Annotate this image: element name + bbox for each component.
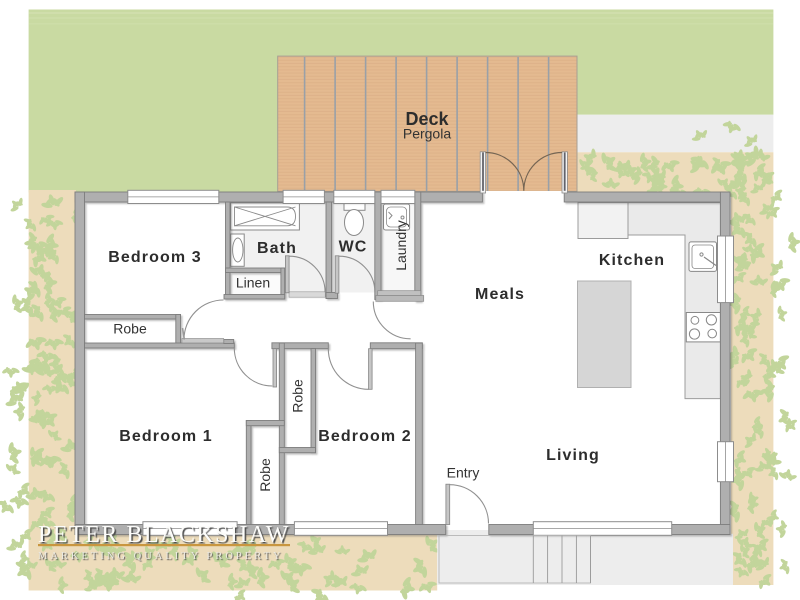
svg-text:Bedroom 2: Bedroom 2: [318, 428, 411, 445]
svg-text:MARKETING QUALITY PROPERTY: MARKETING QUALITY PROPERTY: [38, 551, 284, 562]
svg-text:Robe: Robe: [257, 458, 273, 492]
svg-text:WC: WC: [339, 239, 368, 256]
svg-text:Linen: Linen: [236, 275, 270, 291]
svg-text:Living: Living: [546, 447, 600, 464]
svg-text:Bedroom 1: Bedroom 1: [119, 428, 212, 445]
svg-text:Bath: Bath: [257, 240, 297, 257]
svg-text:Laundry: Laundry: [393, 220, 409, 271]
svg-text:Kitchen: Kitchen: [599, 252, 665, 269]
svg-text:Bedroom 3: Bedroom 3: [108, 249, 201, 266]
svg-text:Entry: Entry: [447, 465, 480, 481]
svg-text:Robe: Robe: [290, 379, 306, 413]
svg-text:Pergola: Pergola: [403, 126, 451, 142]
svg-text:Robe: Robe: [113, 321, 147, 337]
svg-text:Meals: Meals: [475, 286, 525, 303]
